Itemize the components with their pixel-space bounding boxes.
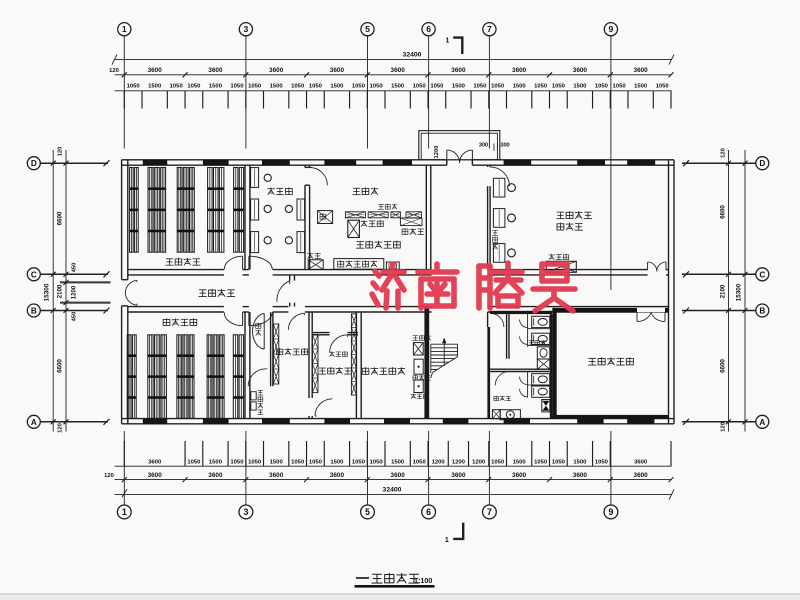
svg-text:1200: 1200 <box>452 459 466 465</box>
svg-text:3600: 3600 <box>269 472 284 479</box>
svg-text:1050: 1050 <box>370 459 384 465</box>
svg-text:3: 3 <box>244 24 249 34</box>
svg-text:1200: 1200 <box>434 146 440 159</box>
svg-text:3600: 3600 <box>148 67 163 74</box>
svg-text:3600: 3600 <box>451 67 466 74</box>
svg-text:1500: 1500 <box>513 84 527 90</box>
svg-text:1200: 1200 <box>432 459 446 465</box>
svg-text:1500: 1500 <box>209 459 223 465</box>
svg-text:1050: 1050 <box>534 459 548 465</box>
svg-text:1050: 1050 <box>248 459 262 465</box>
svg-text:3600: 3600 <box>573 67 588 74</box>
svg-text:6600: 6600 <box>720 359 727 373</box>
svg-text:120: 120 <box>721 422 727 432</box>
svg-text:1050: 1050 <box>309 459 323 465</box>
svg-text:1050: 1050 <box>595 459 609 465</box>
svg-text:1050: 1050 <box>413 459 427 465</box>
svg-text:1:100: 1:100 <box>414 576 432 585</box>
svg-text:15300: 15300 <box>736 283 743 301</box>
svg-text:1050: 1050 <box>291 459 305 465</box>
svg-text:1050: 1050 <box>413 84 427 90</box>
svg-text:C: C <box>31 270 37 279</box>
svg-text:1500: 1500 <box>513 459 527 465</box>
svg-text:1050: 1050 <box>370 84 384 90</box>
svg-text:1: 1 <box>446 38 450 45</box>
svg-text:300: 300 <box>479 143 488 149</box>
svg-text:1050: 1050 <box>595 84 609 90</box>
svg-text:1500: 1500 <box>270 459 284 465</box>
svg-text:1050: 1050 <box>170 84 184 90</box>
svg-text:1050: 1050 <box>656 84 670 90</box>
svg-text:1500: 1500 <box>391 84 405 90</box>
svg-text:1050: 1050 <box>127 84 141 90</box>
svg-text:2100: 2100 <box>57 284 64 298</box>
svg-text:3600: 3600 <box>634 67 649 74</box>
svg-text:3600: 3600 <box>573 472 588 479</box>
svg-text:6600: 6600 <box>57 211 64 225</box>
svg-text:1050: 1050 <box>230 84 244 90</box>
svg-text:120: 120 <box>721 148 727 158</box>
svg-text:1500: 1500 <box>209 84 223 90</box>
svg-text:1500: 1500 <box>330 84 344 90</box>
svg-text:1500: 1500 <box>330 459 344 465</box>
svg-text:300: 300 <box>500 143 509 149</box>
svg-text:3600: 3600 <box>391 67 406 74</box>
svg-text:450: 450 <box>72 263 78 273</box>
svg-text:1050: 1050 <box>248 84 262 90</box>
svg-text:5: 5 <box>365 24 370 34</box>
svg-text:1050: 1050 <box>291 84 305 90</box>
svg-text:3600: 3600 <box>512 472 527 479</box>
svg-text:450: 450 <box>72 312 78 322</box>
svg-text:120: 120 <box>58 147 64 157</box>
svg-text:1050: 1050 <box>352 84 366 90</box>
svg-text:3600: 3600 <box>269 67 284 74</box>
svg-text:1050: 1050 <box>187 459 201 465</box>
svg-text:15300: 15300 <box>44 283 51 301</box>
svg-text:D: D <box>759 159 765 168</box>
svg-text:6600: 6600 <box>720 205 727 219</box>
svg-text:32400: 32400 <box>383 487 402 494</box>
svg-text:1050: 1050 <box>552 459 566 465</box>
svg-text:1050: 1050 <box>187 84 201 90</box>
svg-text:C: C <box>759 270 765 279</box>
svg-text:1050: 1050 <box>552 84 566 90</box>
svg-text:1: 1 <box>122 24 127 34</box>
svg-text:3600: 3600 <box>148 459 162 465</box>
svg-text:3600: 3600 <box>330 472 345 479</box>
svg-text:7: 7 <box>487 24 492 34</box>
svg-text:1050: 1050 <box>230 459 244 465</box>
svg-text:6600: 6600 <box>57 359 64 373</box>
svg-text:A: A <box>759 418 765 427</box>
svg-text:120: 120 <box>58 423 64 433</box>
svg-text:3: 3 <box>243 507 248 517</box>
svg-text:D: D <box>31 159 37 168</box>
svg-text:7: 7 <box>487 507 492 517</box>
svg-text:1: 1 <box>122 507 127 517</box>
svg-text:3600: 3600 <box>391 472 406 479</box>
svg-text:1050: 1050 <box>309 84 323 90</box>
svg-text:B: B <box>31 307 37 316</box>
svg-text:9: 9 <box>609 24 614 34</box>
svg-text:1050: 1050 <box>534 84 548 90</box>
svg-text:1050: 1050 <box>491 84 505 90</box>
svg-text:1500: 1500 <box>452 84 466 90</box>
svg-text:1050: 1050 <box>491 459 505 465</box>
svg-text:1050: 1050 <box>352 459 366 465</box>
svg-text:1500: 1500 <box>573 459 587 465</box>
svg-text:3600: 3600 <box>148 472 163 479</box>
svg-text:3600: 3600 <box>208 472 223 479</box>
svg-text:1500: 1500 <box>573 84 587 90</box>
svg-text:1: 1 <box>445 537 449 544</box>
svg-text:1200: 1200 <box>72 285 78 299</box>
svg-text:3600: 3600 <box>330 67 345 74</box>
svg-text:1050: 1050 <box>473 84 487 90</box>
svg-text:2100: 2100 <box>720 284 727 298</box>
svg-text:B: B <box>759 307 765 316</box>
svg-text:120: 120 <box>109 68 119 74</box>
svg-text:1500: 1500 <box>634 84 648 90</box>
svg-text:3600: 3600 <box>634 472 649 479</box>
svg-text:6: 6 <box>426 507 431 517</box>
svg-text:32400: 32400 <box>403 52 422 59</box>
svg-text:3600: 3600 <box>208 67 223 74</box>
svg-text:1500: 1500 <box>391 459 405 465</box>
svg-text:6: 6 <box>426 24 431 34</box>
svg-text:1200: 1200 <box>472 459 486 465</box>
svg-text:1500: 1500 <box>270 84 284 90</box>
svg-text:9: 9 <box>608 507 613 517</box>
svg-text:5: 5 <box>365 507 370 517</box>
svg-text:1500: 1500 <box>148 84 162 90</box>
svg-text:A: A <box>31 418 37 427</box>
svg-text:3600: 3600 <box>634 459 648 465</box>
svg-text:1050: 1050 <box>613 84 627 90</box>
svg-text:1050: 1050 <box>430 84 444 90</box>
svg-text:120: 120 <box>104 473 114 479</box>
svg-text:3600: 3600 <box>451 472 466 479</box>
svg-text:3600: 3600 <box>512 67 527 74</box>
